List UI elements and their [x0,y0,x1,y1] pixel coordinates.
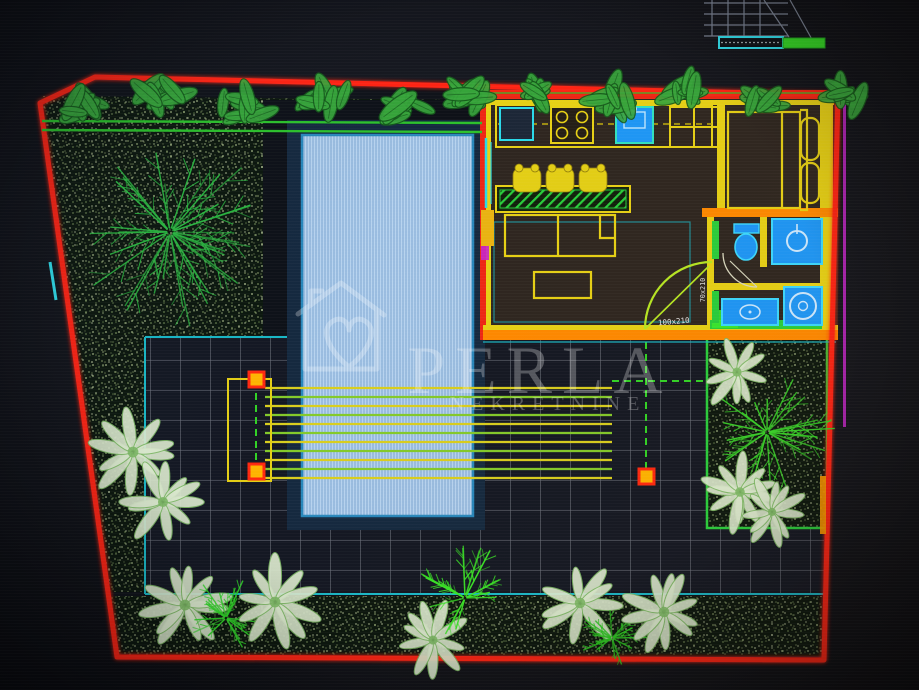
left-wall-pier [481,210,494,246]
scale-bar [719,37,825,48]
toilet-icon [734,224,759,260]
stove-icon [551,107,593,143]
bathroom-divider-wall [760,217,767,267]
site-plan-drawing: 100x210 70x210 [0,0,919,690]
cad-site-plan-photo: 100x210 70x210 [0,0,919,690]
bar-stool-icon [579,164,607,192]
bar-stool-icon [513,164,541,192]
bar-stool-icon [546,164,574,192]
bar-stools [513,164,607,192]
bed-bath-wall [702,208,838,217]
brand-subtitle: NEKRETNINE [450,393,647,415]
boundary-orange-segment [820,476,826,534]
bathroom-door-label: 70x210 [699,278,707,303]
washing-machine-icon [784,287,822,325]
shower-icon [772,219,822,264]
dimension-line-magenta [843,97,846,427]
fridge-icon [500,108,533,140]
house: 100x210 70x210 [480,90,838,342]
vanity-sink-icon [722,299,778,325]
boundary-cyan-tick [50,262,56,300]
